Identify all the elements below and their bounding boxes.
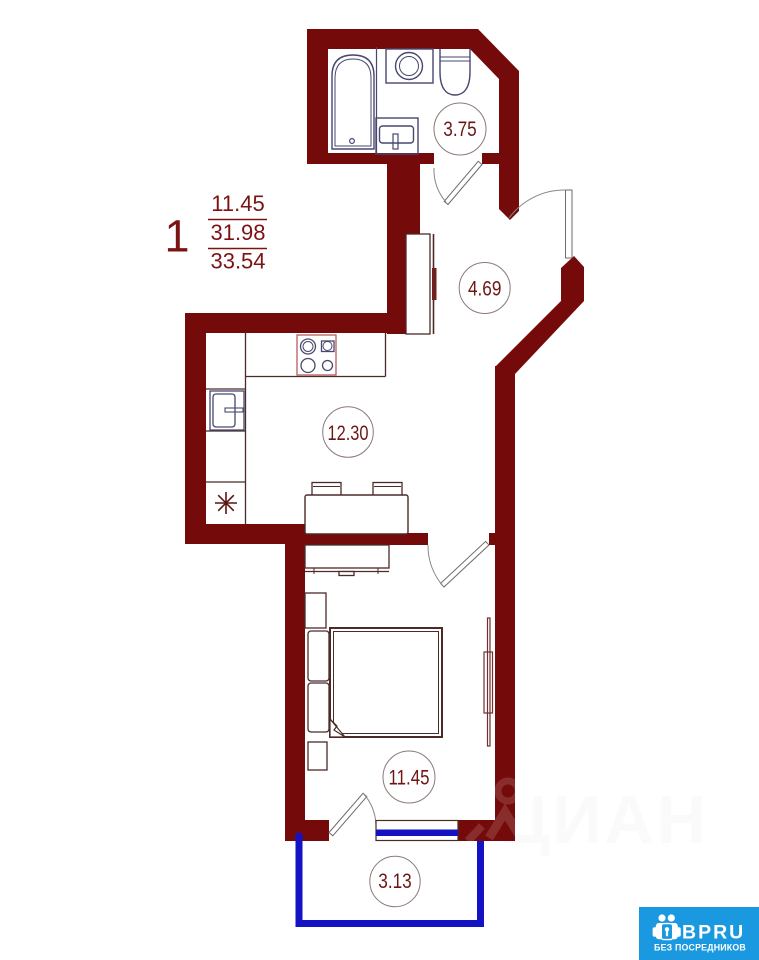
svg-text:33.54: 33.54 xyxy=(210,249,265,274)
svg-text:3.75: 3.75 xyxy=(443,117,477,141)
svg-text:ЦИАН: ЦИАН xyxy=(500,782,709,858)
svg-text:1: 1 xyxy=(164,211,189,262)
svg-text:31.98: 31.98 xyxy=(210,220,265,245)
svg-text:11.45: 11.45 xyxy=(389,766,430,790)
svg-text:3.13: 3.13 xyxy=(378,869,412,893)
svg-text:BPRU: BPRU xyxy=(682,922,745,944)
svg-text:БЕЗ ПОСРЕДНИКОВ: БЕЗ ПОСРЕДНИКОВ xyxy=(654,943,746,953)
svg-text:12.30: 12.30 xyxy=(328,421,369,445)
svg-text:11.45: 11.45 xyxy=(211,191,264,216)
svg-text:4.69: 4.69 xyxy=(468,277,502,301)
